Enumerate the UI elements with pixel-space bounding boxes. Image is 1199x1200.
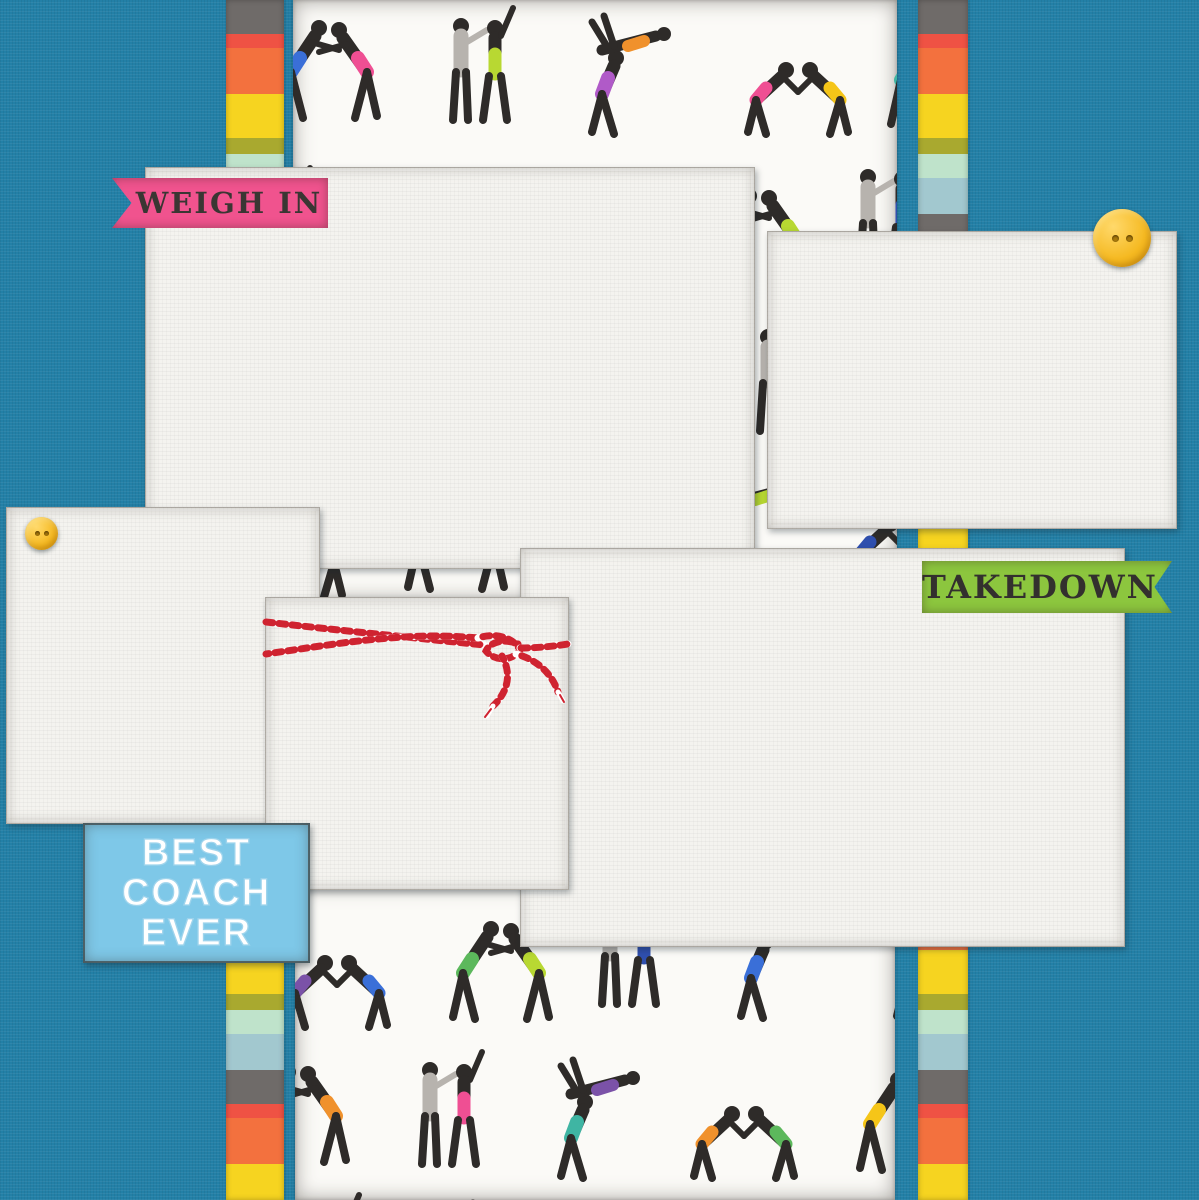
yellow-button-small xyxy=(25,517,58,550)
weigh-in-banner: WEIGH IN xyxy=(112,178,328,228)
photo-mat-center-twine xyxy=(265,597,569,890)
takedown-label: TAKEDOWN xyxy=(922,568,1174,606)
scrapbook-page: WEIGH IN TAKEDOWN BEST COACH EVER xyxy=(0,0,1199,1200)
yellow-button-large xyxy=(1093,209,1151,267)
coach-card-line1: BEST xyxy=(142,833,251,873)
weigh-in-label: WEIGH IN xyxy=(112,186,328,220)
coach-card-line3: EVER xyxy=(141,913,252,953)
button-hole xyxy=(1126,235,1133,242)
coach-card-line2: COACH xyxy=(122,873,271,913)
takedown-banner: TAKEDOWN xyxy=(922,561,1172,613)
button-hole xyxy=(1112,235,1119,242)
bakers-twine-bow xyxy=(266,598,568,889)
button-hole xyxy=(44,531,49,536)
photo-mat-top-right xyxy=(767,231,1177,529)
best-coach-ever-card: BEST COACH EVER xyxy=(83,823,310,963)
button-hole xyxy=(35,531,40,536)
